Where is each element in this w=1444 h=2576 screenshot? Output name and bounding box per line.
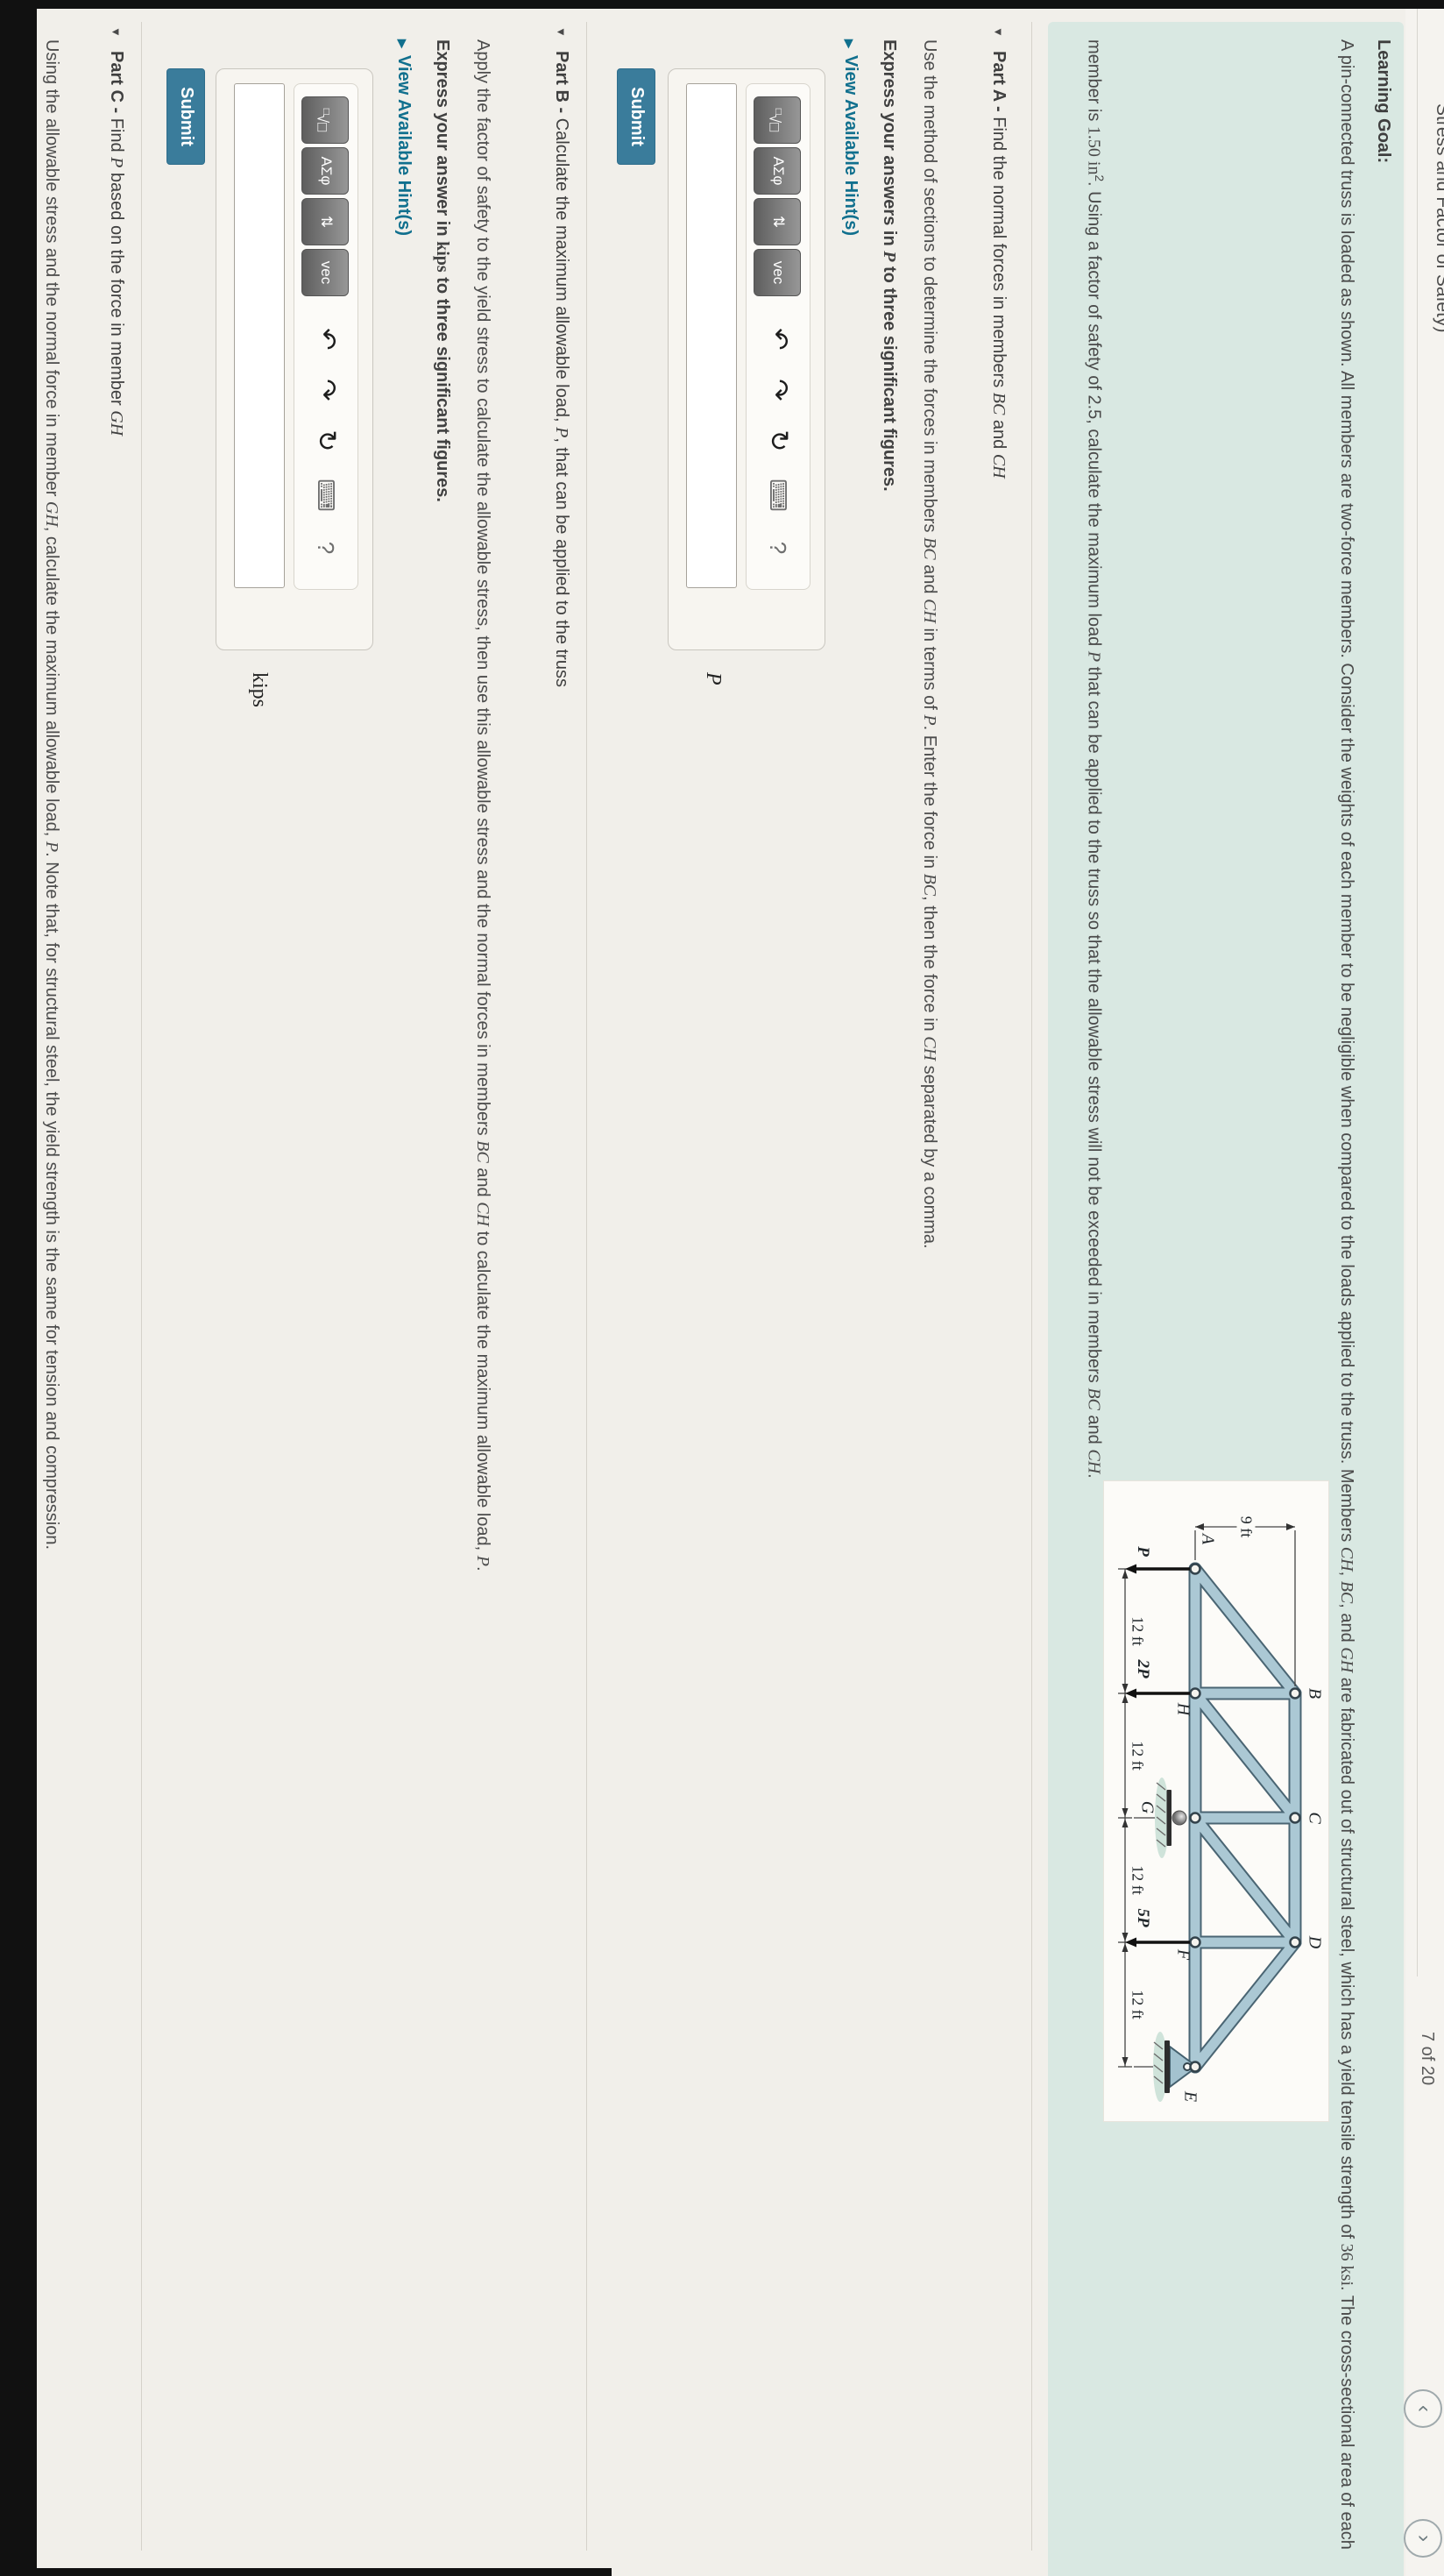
node-label-c: C — [1305, 1812, 1325, 1823]
chevron-right-icon: › — [1412, 2535, 1436, 2542]
hint-arrow-icon: ▶ — [396, 39, 409, 48]
redo-icon[interactable]: ↷ — [755, 370, 801, 410]
part-a-answer-input[interactable] — [686, 83, 737, 588]
part-c-description: Using the allowable stress and the norma… — [41, 39, 61, 1550]
item-counter: 7 of 20 — [1417, 2032, 1437, 2085]
node-label-h: H — [1173, 1703, 1193, 1715]
node-label-g: G — [1137, 1801, 1157, 1813]
photo-frame: Stress and Factor of Safety) 7 of 20 ‹ ›… — [0, 0, 1444, 2576]
item-title-clipped: Stress and Factor of Safety) — [1431, 103, 1444, 332]
redo-icon[interactable]: ↷ — [303, 370, 349, 410]
top-bar: Stress and Factor of Safety) 7 of 20 ‹ › — [1405, 0, 1444, 2576]
help-icon[interactable]: ? — [303, 528, 349, 568]
truss-figure: A B C D E F G H 9 ft 12 ft 12 ft 12 ft 1… — [1104, 1481, 1328, 2121]
equation-template-button[interactable]: □√□ — [301, 96, 349, 144]
equation-template-button[interactable]: □√□ — [754, 96, 801, 144]
part-a-hint-link[interactable]: ▶View Available Hint(s) — [840, 39, 860, 236]
undo-icon[interactable]: ↶ — [303, 319, 349, 359]
part-c-title: Find P based on the force in member GH — [107, 118, 126, 436]
dim-12ft-label: 12 ft — [1129, 1863, 1147, 1897]
part-a-express: Express your answers in P to three signi… — [879, 39, 899, 492]
vector-notation-button[interactable]: vec — [754, 249, 801, 296]
prev-item-button[interactable]: ‹ — [1404, 2389, 1442, 2428]
part-b-label: Part B - — [552, 51, 571, 118]
part-b-answer-input[interactable] — [234, 83, 285, 588]
units-toggle-button[interactable]: ⇅ — [754, 198, 801, 245]
vector-notation-button[interactable]: vec — [301, 249, 349, 296]
monitor-bezel — [0, 2568, 612, 2576]
mastering-item-page: Stress and Factor of Safety) 7 of 20 ‹ ›… — [0, 0, 1444, 2576]
monitor-bezel — [0, 0, 37, 2576]
hint-arrow-icon: ▶ — [843, 39, 856, 48]
learning-goal-label: Learning Goal: — [1373, 39, 1393, 163]
node-label-a: A — [1198, 1534, 1218, 1544]
dim-12ft-label: 12 ft — [1129, 1988, 1147, 2021]
part-b-express: Express your answer in kips to three sig… — [432, 39, 452, 502]
part-b-title: Calculate the maximum allowable load, P,… — [552, 118, 571, 687]
intro-paragraph-line1: A pin-connected truss is loaded as shown… — [1336, 39, 1356, 2550]
collapse-caret-icon: ▼ — [555, 26, 568, 38]
math-toolbar: □√□ ΑΣφ ⇅ vec ↶ ↷ ↻ ⌨ ? — [294, 83, 358, 590]
dim-9ft-label: 9 ft — [1237, 1515, 1256, 1540]
part-b-answer-box: □√□ ΑΣφ ⇅ vec ↶ ↷ ↻ ⌨ ? kips — [216, 68, 373, 650]
units-toggle-button[interactable]: ⇅ — [301, 198, 349, 245]
part-b-unit-label: kips — [247, 672, 271, 707]
top-bar-divider — [1417, 0, 1418, 1976]
reset-icon[interactable]: ↻ — [755, 421, 801, 461]
node-label-e: E — [1180, 2091, 1200, 2102]
keyboard-icon[interactable]: ⌨ — [755, 475, 801, 515]
load-label-2p: 2P — [1133, 1659, 1152, 1678]
math-toolbar: □√□ ΑΣφ ⇅ vec ↶ ↷ ↻ ⌨ ? — [746, 83, 810, 590]
help-icon[interactable]: ? — [755, 528, 801, 568]
dim-12ft-label: 12 ft — [1129, 1739, 1147, 1772]
section-divider — [141, 22, 142, 2551]
part-b-hint-link[interactable]: ▶View Available Hint(s) — [393, 39, 414, 236]
node-label-b: B — [1305, 1688, 1325, 1699]
collapse-caret-icon: ▼ — [992, 26, 1005, 38]
part-c-label: Part C - — [107, 51, 126, 118]
undo-icon[interactable]: ↶ — [755, 319, 801, 359]
part-a-submit-button[interactable]: Submit — [617, 68, 655, 165]
reset-icon[interactable]: ↻ — [303, 421, 349, 461]
part-a-answer-box: □√□ ΑΣφ ⇅ vec ↶ ↷ ↻ ⌨ ? P — [668, 68, 825, 650]
dim-12ft-label: 12 ft — [1129, 1614, 1147, 1648]
keyboard-icon[interactable]: ⌨ — [303, 475, 349, 515]
learning-goal-box: Learning Goal: A pin-connected truss is … — [1048, 22, 1404, 2576]
part-a-title: Find the normal forces in members BC and… — [989, 117, 1009, 478]
part-a-unit-label: P — [701, 672, 725, 685]
next-item-button[interactable]: › — [1404, 2519, 1442, 2558]
load-label-p: P — [1133, 1546, 1152, 1557]
section-divider — [586, 22, 587, 2551]
section-divider — [1031, 22, 1032, 2551]
node-label-f: F — [1173, 1949, 1193, 1960]
greek-symbols-button[interactable]: ΑΣφ — [754, 147, 801, 195]
part-b-submit-button[interactable]: Submit — [166, 68, 205, 165]
collapse-caret-icon: ▼ — [110, 26, 123, 38]
node-label-d: D — [1305, 1936, 1325, 1948]
greek-symbols-button[interactable]: ΑΣφ — [301, 147, 349, 195]
chevron-left-icon: ‹ — [1412, 2405, 1436, 2412]
monitor-bezel — [0, 0, 1444, 9]
load-label-5p: 5P — [1133, 1908, 1152, 1927]
part-a-description: Use the method of sections to determine … — [919, 39, 939, 1249]
intro-paragraph-line2: member is 1.50 in2. Using a factor of sa… — [1083, 39, 1106, 1479]
part-a-label: Part A - — [989, 51, 1009, 117]
part-b-description: Apply the factor of safety to the yield … — [472, 39, 492, 1572]
